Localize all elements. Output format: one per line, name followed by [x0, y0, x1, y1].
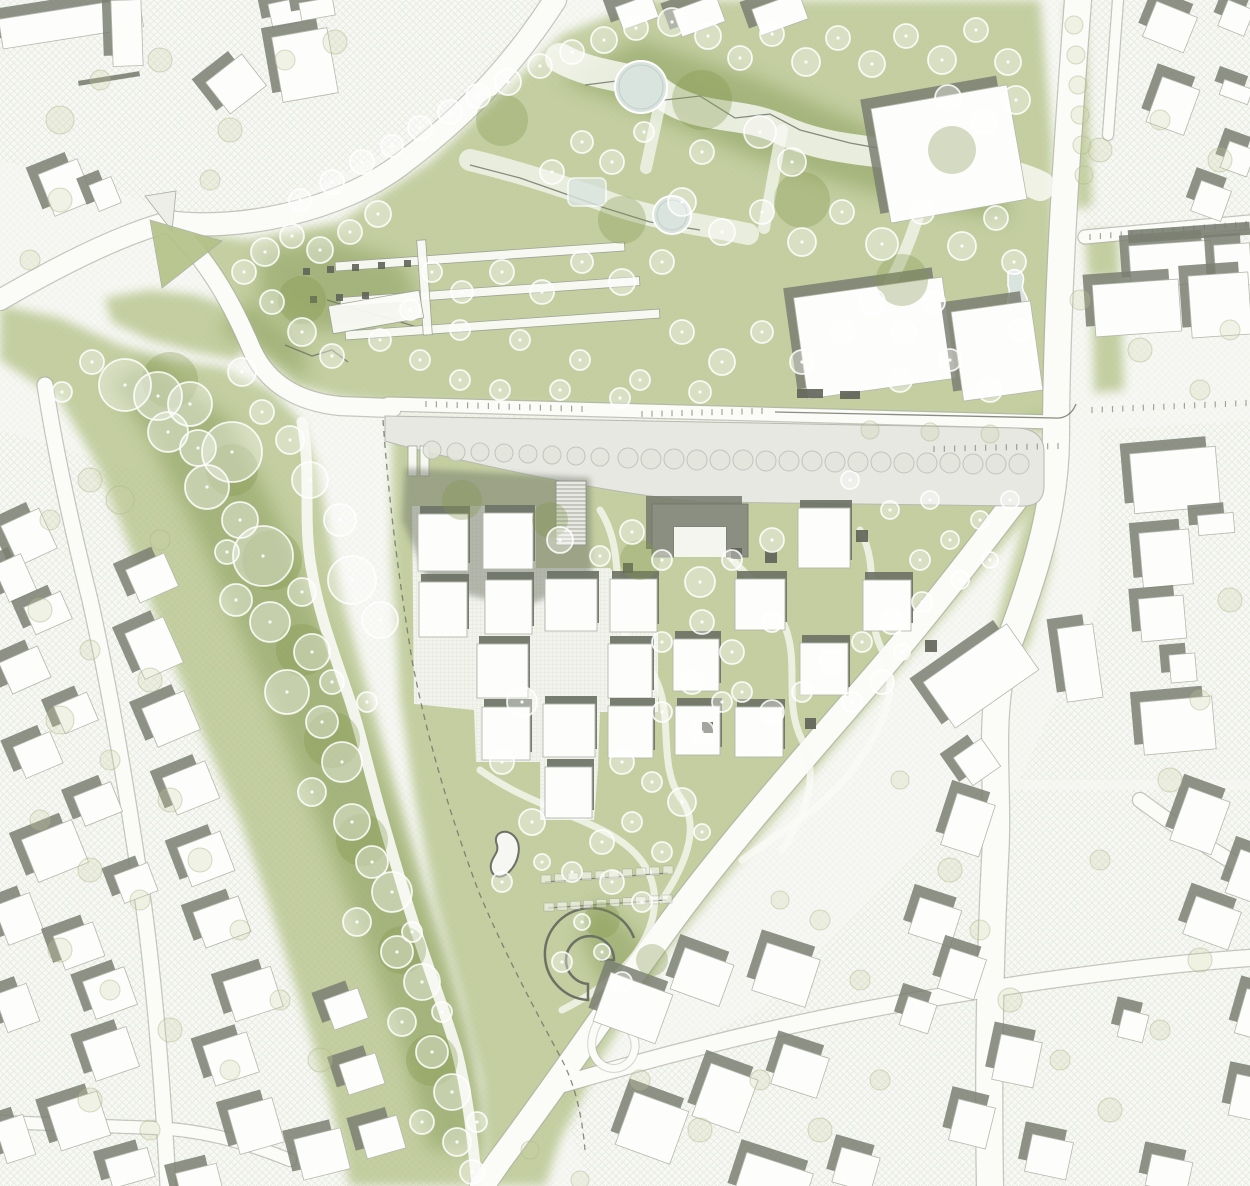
garden-tree [921, 423, 939, 441]
tree-center-dot [932, 300, 935, 303]
tree-center-dot [390, 890, 393, 893]
pavilion [404, 260, 411, 267]
tree-center-dot [350, 578, 353, 581]
tree-center-dot [770, 538, 773, 541]
tree-center-dot [770, 32, 773, 35]
pavilion [840, 391, 860, 399]
tree-center-dot [880, 242, 883, 245]
tree-center-dot [310, 790, 313, 793]
tree-center-dot [470, 1170, 473, 1173]
tree-center-dot [740, 690, 743, 693]
tree-center-dot [634, 26, 637, 29]
garden-tree [275, 50, 295, 70]
boulevard-tree [543, 446, 561, 464]
tree-center-dot [994, 216, 997, 219]
site-plan-map [0, 0, 1250, 1186]
pavilion [805, 718, 816, 729]
tree-center-dot [355, 920, 358, 923]
tree-center-dot [620, 980, 623, 983]
tree-center-dot [558, 538, 561, 541]
tree-center-dot [660, 640, 663, 643]
garden-tree [100, 750, 120, 770]
tree-center-dot [698, 390, 701, 393]
tree-center-dot [370, 860, 373, 863]
campus-building [798, 500, 852, 568]
campus-building [483, 505, 535, 569]
campus-building-roof [608, 644, 652, 698]
campus-building [608, 698, 655, 758]
garden-tree [771, 891, 789, 909]
parking-stall [541, 875, 551, 883]
garden-tree [138, 668, 162, 692]
garden-tree [1070, 290, 1090, 310]
tree-center-dot [475, 1120, 478, 1123]
tree-center-dot [982, 120, 985, 123]
garden-tree [1150, 1020, 1170, 1040]
boulevard-tree [986, 454, 1006, 474]
tree-center-dot [570, 50, 573, 53]
campus-building [419, 574, 469, 637]
tree-center-dot [500, 880, 503, 883]
tree-center-dot [1012, 260, 1015, 263]
garden-tree [1073, 136, 1091, 154]
tree-center-dot [630, 530, 633, 533]
pavilion [336, 294, 343, 301]
garden-tree [48, 938, 72, 962]
tree-center-dot [365, 700, 368, 703]
campus-building-roof [798, 508, 850, 568]
garden-tree [1090, 850, 1110, 870]
garden-tree [1190, 380, 1210, 400]
tree-center-dot [123, 383, 126, 386]
tree-center-dot [840, 330, 843, 333]
campus-building [545, 571, 599, 631]
tree-center-dot [458, 378, 461, 381]
building [1016, 1121, 1076, 1180]
garden-tree [130, 890, 150, 910]
tree-center-dot [268, 620, 271, 623]
campus-building-roof [610, 579, 657, 632]
campus-building [545, 759, 594, 818]
campus-building-roof [483, 513, 533, 569]
building [1083, 268, 1182, 337]
tree-center-dot [420, 980, 423, 983]
tree-canopy-dark [774, 172, 830, 228]
tree-center-dot [430, 1050, 433, 1053]
garden-tree [140, 1120, 160, 1140]
tree-center-dot [520, 700, 523, 703]
tree-center-dot [804, 60, 807, 63]
garden-tree [30, 810, 50, 830]
boulevard-tree [825, 452, 845, 472]
garden-tree [150, 530, 170, 550]
tree-center-dot [700, 150, 703, 153]
tree-center-dot [420, 1120, 423, 1123]
tree-center-dot [500, 760, 503, 763]
courtyard [674, 527, 726, 557]
garden-tree [200, 170, 220, 190]
garden-tree [870, 1070, 890, 1090]
garden-tree [850, 970, 870, 990]
tree-center-dot [700, 830, 703, 833]
boulevard-tree [848, 452, 868, 472]
tree-center-dot [720, 700, 723, 703]
boulevard-tree [963, 454, 983, 474]
tree-center-dot [638, 378, 641, 381]
tree-center-dot [330, 680, 333, 683]
garden-tree [100, 980, 120, 1000]
tree-center-dot [642, 130, 645, 133]
tree-center-dot [602, 38, 605, 41]
parking-stall [544, 903, 554, 911]
tree-center-dot [418, 126, 421, 129]
garden-tree [1158, 768, 1182, 792]
tree-center-dot [460, 290, 463, 293]
tree-center-dot [350, 820, 353, 823]
tree-center-dot [800, 240, 803, 243]
building-roof [1130, 446, 1221, 513]
tree-center-dot [948, 538, 951, 541]
tree-center-dot [310, 650, 313, 653]
campus-building-roof [419, 582, 467, 637]
garden-tree [308, 1048, 332, 1072]
tree-center-dot [320, 720, 323, 723]
campus-building-roof [485, 580, 532, 634]
building [261, 17, 338, 104]
building-roof [1025, 1134, 1074, 1180]
building-roof [1188, 272, 1250, 338]
building-roof [1139, 529, 1194, 588]
tree-center-dot [476, 94, 479, 97]
boulevard-tree [917, 453, 937, 473]
tree-center-dot [610, 880, 613, 883]
garden-tree [158, 788, 182, 812]
tree-center-dot [600, 950, 603, 953]
tree-center-dot [904, 34, 907, 37]
water-pool-small [568, 178, 606, 206]
tree-center-dot [928, 498, 931, 501]
garden-tree [220, 1060, 240, 1080]
parking-stall [636, 868, 646, 876]
tree-center-dot [298, 198, 301, 201]
garden-tree [323, 30, 347, 54]
boulevard-tree [940, 453, 960, 473]
tree-center-dot [600, 840, 603, 843]
tree-center-dot [580, 140, 583, 143]
tree-center-dot [848, 478, 851, 481]
tree-center-dot [880, 680, 883, 683]
garden-tree [28, 598, 52, 622]
parking-stall [557, 902, 567, 910]
tree-center-dot [680, 800, 683, 803]
boulevard-tree [641, 449, 661, 469]
garden-tree [78, 1088, 102, 1112]
tree-center-dot [620, 760, 623, 763]
parking-stall [649, 867, 659, 875]
garden-tree [1065, 16, 1083, 34]
tree-center-dot [450, 1090, 453, 1093]
campus-building [608, 636, 654, 698]
garden-tree [1208, 148, 1232, 172]
building-roof [1092, 279, 1181, 337]
tree-center-dot [430, 270, 433, 273]
garden-tree [938, 858, 962, 882]
tree-center-dot [730, 558, 733, 561]
tree-center-dot [580, 260, 583, 263]
pavilion [303, 268, 310, 275]
parking-stall [622, 869, 632, 877]
tree-center-dot [378, 618, 381, 621]
boulevard-tree [710, 450, 730, 470]
garden-tree [1088, 138, 1112, 162]
pavilion [925, 640, 937, 652]
tree-center-dot [308, 478, 311, 481]
tree-center-dot [630, 820, 633, 823]
tree-center-dot [238, 518, 241, 521]
boulevard-tree [591, 448, 609, 466]
garden-tree [188, 848, 212, 872]
tree-center-dot [240, 370, 243, 373]
tree-center-dot [376, 212, 379, 215]
garden-tree [1050, 1050, 1070, 1070]
garden-tree [270, 990, 290, 1010]
building-roof [1197, 512, 1235, 535]
tree-center-dot [458, 328, 461, 331]
building [783, 266, 956, 400]
garden-tree [1188, 948, 1212, 972]
tree-center-dot [988, 388, 991, 391]
pavilion [352, 264, 359, 271]
tree-center-dot [318, 248, 321, 251]
boulevard-tree [733, 450, 753, 470]
tree-center-dot [870, 300, 873, 303]
tree-center-dot [670, 20, 673, 23]
tree-center-dot [578, 358, 581, 361]
boulevard-tree [687, 450, 707, 470]
tree-center-dot [948, 358, 951, 361]
tree-center-dot [770, 710, 773, 713]
tree-center-dot [448, 110, 451, 113]
tree-center-dot [738, 56, 741, 59]
tree-center-dot [348, 230, 351, 233]
tree-center-dot [870, 62, 873, 65]
tree-center-dot [836, 36, 839, 39]
building-roof [1138, 595, 1187, 642]
tree-center-dot [395, 950, 398, 953]
tree-center-dot [790, 160, 793, 163]
tree-center-dot [698, 580, 701, 583]
tree-center-dot [660, 850, 663, 853]
boulevard-tree [423, 441, 441, 459]
tree-center-dot [330, 354, 333, 357]
garden-tree [1150, 110, 1170, 130]
garden-tree [970, 920, 990, 940]
garden-tree [1098, 1098, 1122, 1122]
tree-center-dot [620, 280, 623, 283]
tree-center-dot [918, 558, 921, 561]
parking-stall [570, 901, 580, 909]
tree-center-dot [720, 230, 723, 233]
tree-center-dot [958, 578, 961, 581]
tree-center-dot [225, 550, 228, 553]
tree-center-dot [156, 394, 159, 397]
tree-center-dot [260, 410, 263, 413]
garden-tree [48, 188, 72, 212]
tree-center-dot [1014, 98, 1017, 101]
tree-center-dot [830, 660, 833, 663]
garden-tree [1220, 320, 1240, 340]
campus-building-roof [418, 514, 468, 571]
tree-center-dot [500, 270, 503, 273]
tree-center-dot [706, 34, 709, 37]
tree-center-dot [680, 330, 683, 333]
tree-center-dot [840, 210, 843, 213]
parking-stall [662, 895, 672, 903]
courtyard-building [646, 496, 748, 557]
garden-tree [1128, 338, 1152, 362]
tree-center-dot [378, 338, 381, 341]
campus-building [485, 572, 534, 634]
garden-tree [218, 118, 242, 142]
tree-center-dot [720, 360, 723, 363]
tree-center-dot [360, 160, 363, 163]
garden-tree [148, 48, 172, 72]
tree-center-dot [690, 680, 693, 683]
tree-center-dot [330, 180, 333, 183]
garden-tree [630, 1070, 650, 1090]
tree-center-dot [390, 144, 393, 147]
tree-center-dot [920, 600, 923, 603]
tree-center-dot [550, 170, 553, 173]
boulevard-tree [756, 451, 776, 471]
garden-tree [810, 910, 830, 930]
garden-tree [80, 640, 100, 660]
garden-tree [861, 421, 879, 439]
campus-building-roof [543, 704, 595, 757]
tree-center-dot [660, 260, 663, 263]
garden-tree [46, 106, 74, 134]
garden-tree [40, 510, 60, 530]
tree-center-dot [580, 920, 583, 923]
tree-canopy-dark [278, 276, 326, 324]
tree-center-dot [285, 690, 288, 693]
tree-center-dot [660, 710, 663, 713]
tree-center-dot [230, 450, 233, 453]
garden-tree [230, 920, 250, 940]
tree-canopy-dark [928, 126, 976, 174]
tree-center-dot [902, 330, 905, 333]
boulevard-tree [447, 443, 465, 461]
tree-center-dot [730, 650, 733, 653]
parking-stall [582, 872, 592, 880]
tree-canopy-dark [598, 196, 646, 244]
tree-center-dot [1008, 498, 1011, 501]
garden-tree [1190, 690, 1210, 710]
tree-center-dot [338, 518, 341, 521]
tree-center-dot [540, 290, 543, 293]
tree-center-dot [680, 200, 683, 203]
garden-tree [891, 771, 909, 789]
tree-center-dot [890, 620, 893, 623]
tree-center-dot [988, 558, 991, 561]
garden-tree [78, 858, 102, 882]
tree-center-dot [800, 690, 803, 693]
boulevard-tree [495, 444, 513, 462]
boulevard-tree [567, 447, 585, 465]
campus-building-roof [545, 579, 597, 631]
tree-center-dot [530, 820, 533, 823]
pavilion [378, 262, 385, 269]
boulevard-tree [664, 449, 684, 469]
garden-tree [981, 425, 999, 443]
site-plan-svg [0, 0, 1250, 1186]
tree-center-dot [760, 330, 763, 333]
boulevard-tree [519, 445, 537, 463]
pavilion [327, 266, 334, 273]
tree-center-dot [920, 210, 923, 213]
tree-center-dot [498, 388, 501, 391]
tree-center-dot [506, 80, 509, 83]
campus-building [610, 571, 659, 632]
tree-center-dot [974, 28, 977, 31]
tree-center-dot [340, 760, 343, 763]
garden-tree [521, 1141, 539, 1159]
tree-center-dot [90, 360, 93, 363]
tree-center-dot [242, 270, 245, 273]
tree-center-dot [518, 338, 521, 341]
tree-center-dot [598, 554, 601, 557]
garden-tree [20, 250, 40, 270]
building-roof [1169, 653, 1197, 683]
tree-center-dot [610, 160, 613, 163]
boulevard-tree [1009, 454, 1029, 474]
garden-tree [1067, 46, 1085, 64]
building-roof [111, 0, 143, 67]
tree-center-dot [234, 598, 237, 601]
tree-center-dot [188, 402, 191, 405]
tree-center-dot [660, 558, 663, 561]
tree-center-dot [1018, 328, 1021, 331]
garden-tree [688, 1118, 712, 1142]
boulevard-tree [871, 452, 891, 472]
garden-tree [46, 706, 74, 734]
campus-building-roof [608, 706, 653, 758]
tree-center-dot [898, 378, 901, 381]
tree-center-dot [205, 485, 208, 488]
building [1120, 435, 1221, 514]
pavilion [797, 389, 823, 398]
garden-tree [78, 468, 102, 492]
tree-center-dot [850, 700, 853, 703]
tree-center-dot [888, 508, 891, 511]
tree-center-dot [455, 1140, 458, 1143]
tree-center-dot [540, 860, 543, 863]
tree-center-dot [650, 780, 653, 783]
tree-center-dot [1006, 60, 1009, 63]
tree-center-dot [700, 620, 703, 623]
building-roof [992, 1034, 1043, 1088]
boulevard-tree [471, 443, 489, 461]
tree-center-dot [860, 640, 863, 643]
tree-canopy-dark [442, 480, 482, 520]
tree-center-dot [978, 518, 981, 521]
tree-center-dot [60, 390, 63, 393]
tree-center-dot [288, 438, 291, 441]
tree-canopy-dark [636, 944, 668, 976]
tree-center-dot [570, 870, 573, 873]
tree-center-dot [618, 396, 621, 399]
tree-center-dot [166, 430, 169, 433]
